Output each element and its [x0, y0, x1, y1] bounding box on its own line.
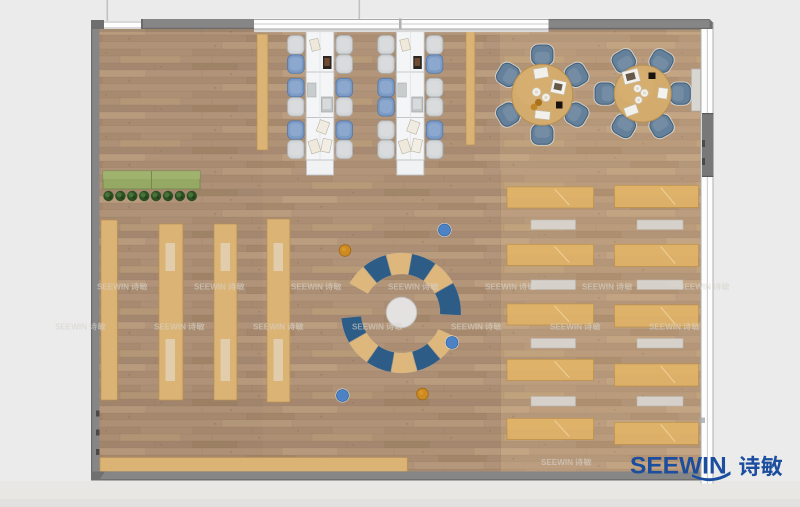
svg-text:SEEWIN: SEEWIN	[291, 283, 323, 292]
svg-text:SEEWIN: SEEWIN	[630, 453, 727, 480]
svg-text:SEEWIN: SEEWIN	[55, 323, 87, 332]
svg-text:SEEWIN: SEEWIN	[352, 323, 384, 332]
svg-text:SEEWIN: SEEWIN	[154, 323, 186, 332]
svg-text:SEEWIN: SEEWIN	[582, 283, 614, 292]
svg-text:SEEWIN: SEEWIN	[679, 283, 711, 292]
svg-text:SEEWIN: SEEWIN	[485, 283, 517, 292]
svg-text:SEEWIN: SEEWIN	[194, 283, 226, 292]
svg-text:SEEWIN: SEEWIN	[649, 323, 681, 332]
svg-text:SEEWIN: SEEWIN	[541, 458, 573, 467]
svg-text:SEEWIN: SEEWIN	[550, 323, 582, 332]
svg-text:SEEWIN: SEEWIN	[253, 323, 285, 332]
svg-text:SEEWIN: SEEWIN	[388, 283, 420, 292]
svg-text:SEEWIN: SEEWIN	[97, 283, 129, 292]
svg-text:SEEWIN: SEEWIN	[451, 323, 483, 332]
